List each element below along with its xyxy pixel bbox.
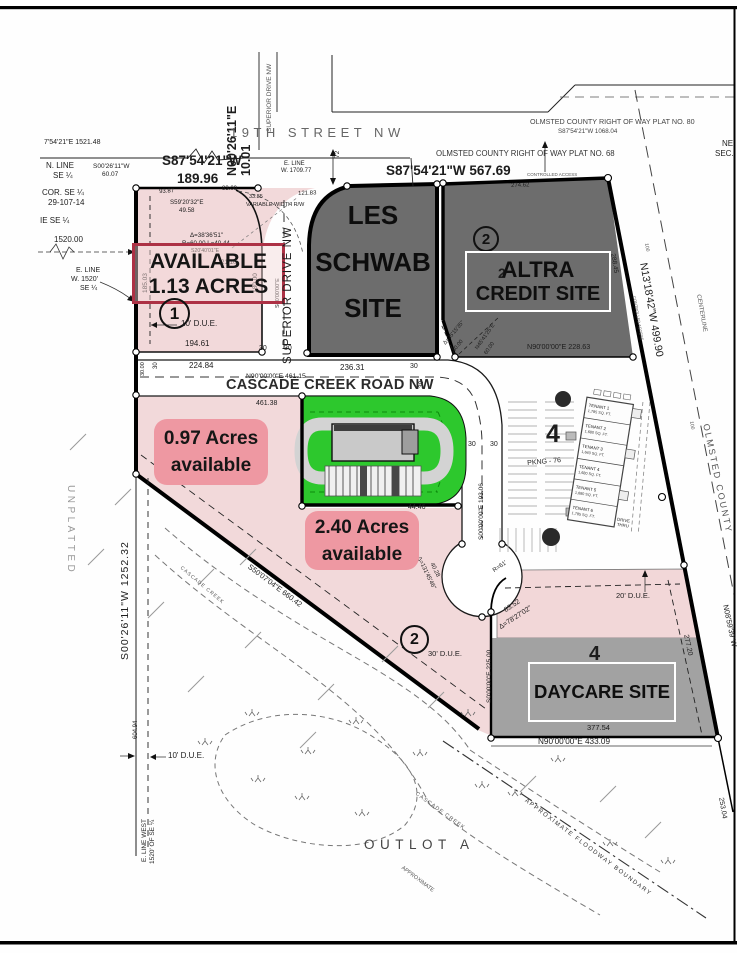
e-line-2: W. 1520' (71, 276, 98, 284)
n90-228: N90'00'00"E 228.63 (527, 343, 590, 351)
les-schwab-line3: SITE (297, 285, 449, 332)
cor-se-1: COR. SE ¼ (42, 189, 84, 198)
sec-label: SEC. (715, 150, 734, 159)
lot4-number: 4 (546, 421, 560, 448)
altra-line1: ALTRA (467, 257, 609, 282)
due-10-bottom: 10' D.U.E. (168, 752, 204, 761)
superior-drive-top-label: SUPERIOR DRIVE NW (266, 64, 273, 132)
les-schwab-line2: SCHWAB (297, 239, 449, 286)
d30-c: 30 (153, 362, 159, 369)
controlled-access-top: CONTROLLED ACCESS (527, 173, 577, 178)
acres-097-line1: 0.97 Acres (164, 425, 258, 452)
available-113-box: AVAILABLE 1.13 ACRES (132, 243, 285, 304)
variable-width-rw: VARIABLE WIDTH R/W (246, 203, 304, 209)
green-parking-strip (325, 466, 421, 496)
e1709-1: E. LINE (284, 161, 305, 167)
d30-a: 30 (259, 345, 267, 353)
dumpster-1 (566, 432, 576, 440)
row-plat-68: OLMSTED COUNTY RIGHT OF WAY PLAT NO. 68 (436, 150, 615, 158)
d1520: 1520.00 (54, 236, 83, 245)
row-plat-80-bearing: S87'54'21"W 1068.04 (558, 129, 617, 136)
d30-d: 30 (410, 363, 418, 371)
d83-09: 83.09 (222, 186, 237, 192)
d377-54: 377.54 (587, 724, 610, 732)
frame-bottom (0, 941, 737, 945)
s0026-bearing: S00'26'11"W (93, 163, 129, 170)
n0026-bearing: N00'26'11"E (225, 106, 239, 176)
acres-240-box: 2.40 Acres available (305, 511, 419, 570)
altra-line2: CREDIT SITE (467, 282, 609, 307)
n0026-dist: 10.01 (239, 145, 253, 176)
cor-se-2: 29-107-14 (48, 199, 84, 208)
tree-2 (542, 528, 560, 546)
county-road-centerline (635, 90, 735, 600)
d33-85: 33.85 (249, 195, 263, 201)
e-line-3: SE ¼ (80, 285, 97, 293)
parcel-2-number-circle-altra: 2 (473, 226, 499, 252)
tree-1 (555, 391, 571, 407)
s00-1252: S00'26'11"W 1252.32 (120, 541, 131, 660)
s59-dist: 49.58 (179, 208, 194, 215)
stall-dark-2 (392, 466, 399, 496)
cascade-road-label: CASCADE CREEK ROAD NW (226, 378, 434, 394)
daycare-pink-strip (497, 569, 698, 638)
acres-240-line1: 2.40 Acres (315, 514, 409, 541)
d100-a: 100 (643, 243, 650, 252)
d30-g: 30 (490, 441, 498, 449)
available-line1: AVAILABLE (135, 249, 282, 274)
d236-31: 236.31 (340, 364, 364, 373)
street-19th-label: 19TH STREET NW (230, 126, 405, 140)
due-20: 20' D.U.E. (616, 592, 650, 600)
available-line2: 1.13 ACRES (135, 274, 282, 299)
due-30: 30' D.U.E. (428, 650, 462, 658)
s0026-dist: 60.07 (102, 171, 118, 178)
plat-drawing: TENANT 1 1,785 SQ. FT. TENANT 2 1,680 SQ… (0, 0, 737, 953)
frame-right (734, 6, 736, 944)
frame-top (0, 6, 737, 9)
bearing-1521: 7'54'21"E 1521.48 (44, 139, 101, 147)
due-10-top: 10' D.U.E. (181, 320, 217, 329)
superior-drive-label: SUPERIOR DRIVE NW (282, 226, 294, 364)
s0-225: S0'00'00"E 225.00 (486, 650, 493, 703)
bearing-567: S87'54'21"W 567.69 (386, 164, 511, 179)
daycare-label: DAYCARE SITE (530, 681, 674, 703)
acres-097-line2: available (171, 452, 251, 479)
d72: 72 (334, 151, 341, 158)
les-schwab-label: LES SCHWAB SITE (297, 192, 449, 332)
plat-map: TENANT 1 1,785 SQ. FT. TENANT 2 1,680 SQ… (0, 0, 737, 953)
d100-b: 100 (688, 421, 695, 430)
e-line-west-2: 1520' OF SE ¼ (149, 820, 156, 864)
ne-corner: NE (722, 140, 733, 149)
delta38: Δ=38'36'51" (190, 233, 223, 240)
d30-b: 30 (284, 345, 292, 353)
d30-00: 30.00 (141, 362, 147, 376)
parcel-2-number-circle-south: 2 (400, 625, 429, 654)
n-line-2: SE ¼ (53, 172, 73, 181)
d461-38: 461.38 (256, 400, 277, 408)
d194-61: 194.61 (185, 340, 209, 349)
d44-46: 44.46 (408, 504, 426, 512)
s59-bearing: S59'20'32"E (170, 200, 203, 207)
ie-se: IE SE ¼ (40, 217, 69, 226)
s00-193: S00'00'00"E 193.06 (478, 483, 485, 540)
d224-84: 224.84 (189, 362, 213, 371)
d274: 274.62 (511, 182, 530, 189)
acres-240-line2: available (322, 541, 402, 568)
s87-189-dist: 189.96 (177, 172, 218, 187)
row-plat-80: OLMSTED COUNTY RIGHT OF WAY PLAT NO. 80 (530, 118, 695, 126)
e1709-2: W. 1709.77 (281, 168, 311, 174)
green-building-canopy (402, 430, 418, 454)
d93-87: 93.87 (159, 188, 174, 195)
stall-dark-1 (360, 466, 367, 496)
daycare-box: DAYCARE SITE (528, 662, 676, 722)
floodway-line (443, 741, 706, 918)
acres-097-box: 0.97 Acres available (154, 419, 268, 485)
e-line-1: E. LINE (76, 267, 100, 275)
d604-94: 604.94 (133, 721, 139, 739)
n0026-vertical: N00'26'11"E10.01 (226, 106, 253, 176)
lot4-parking-stripes (500, 402, 574, 552)
unplatted-label: UNPLATTED (64, 485, 75, 575)
n90-433: N90'00'00"E 433.09 (538, 738, 610, 747)
e-line-west-1: E. LINE WEST (141, 819, 148, 862)
altra-box: ALTRA CREDIT SITE (465, 251, 611, 312)
d30-f: 30 (468, 441, 476, 449)
tenant-building: TENANT 1 1,785 SQ. FT. TENANT 2 1,680 SQ… (567, 388, 660, 535)
les-schwab-line1: LES (297, 192, 449, 239)
n-line-1: N. LINE (46, 162, 74, 171)
outlot-a-label: OUTLOT A (364, 838, 475, 853)
green-building-roofline (334, 425, 412, 431)
